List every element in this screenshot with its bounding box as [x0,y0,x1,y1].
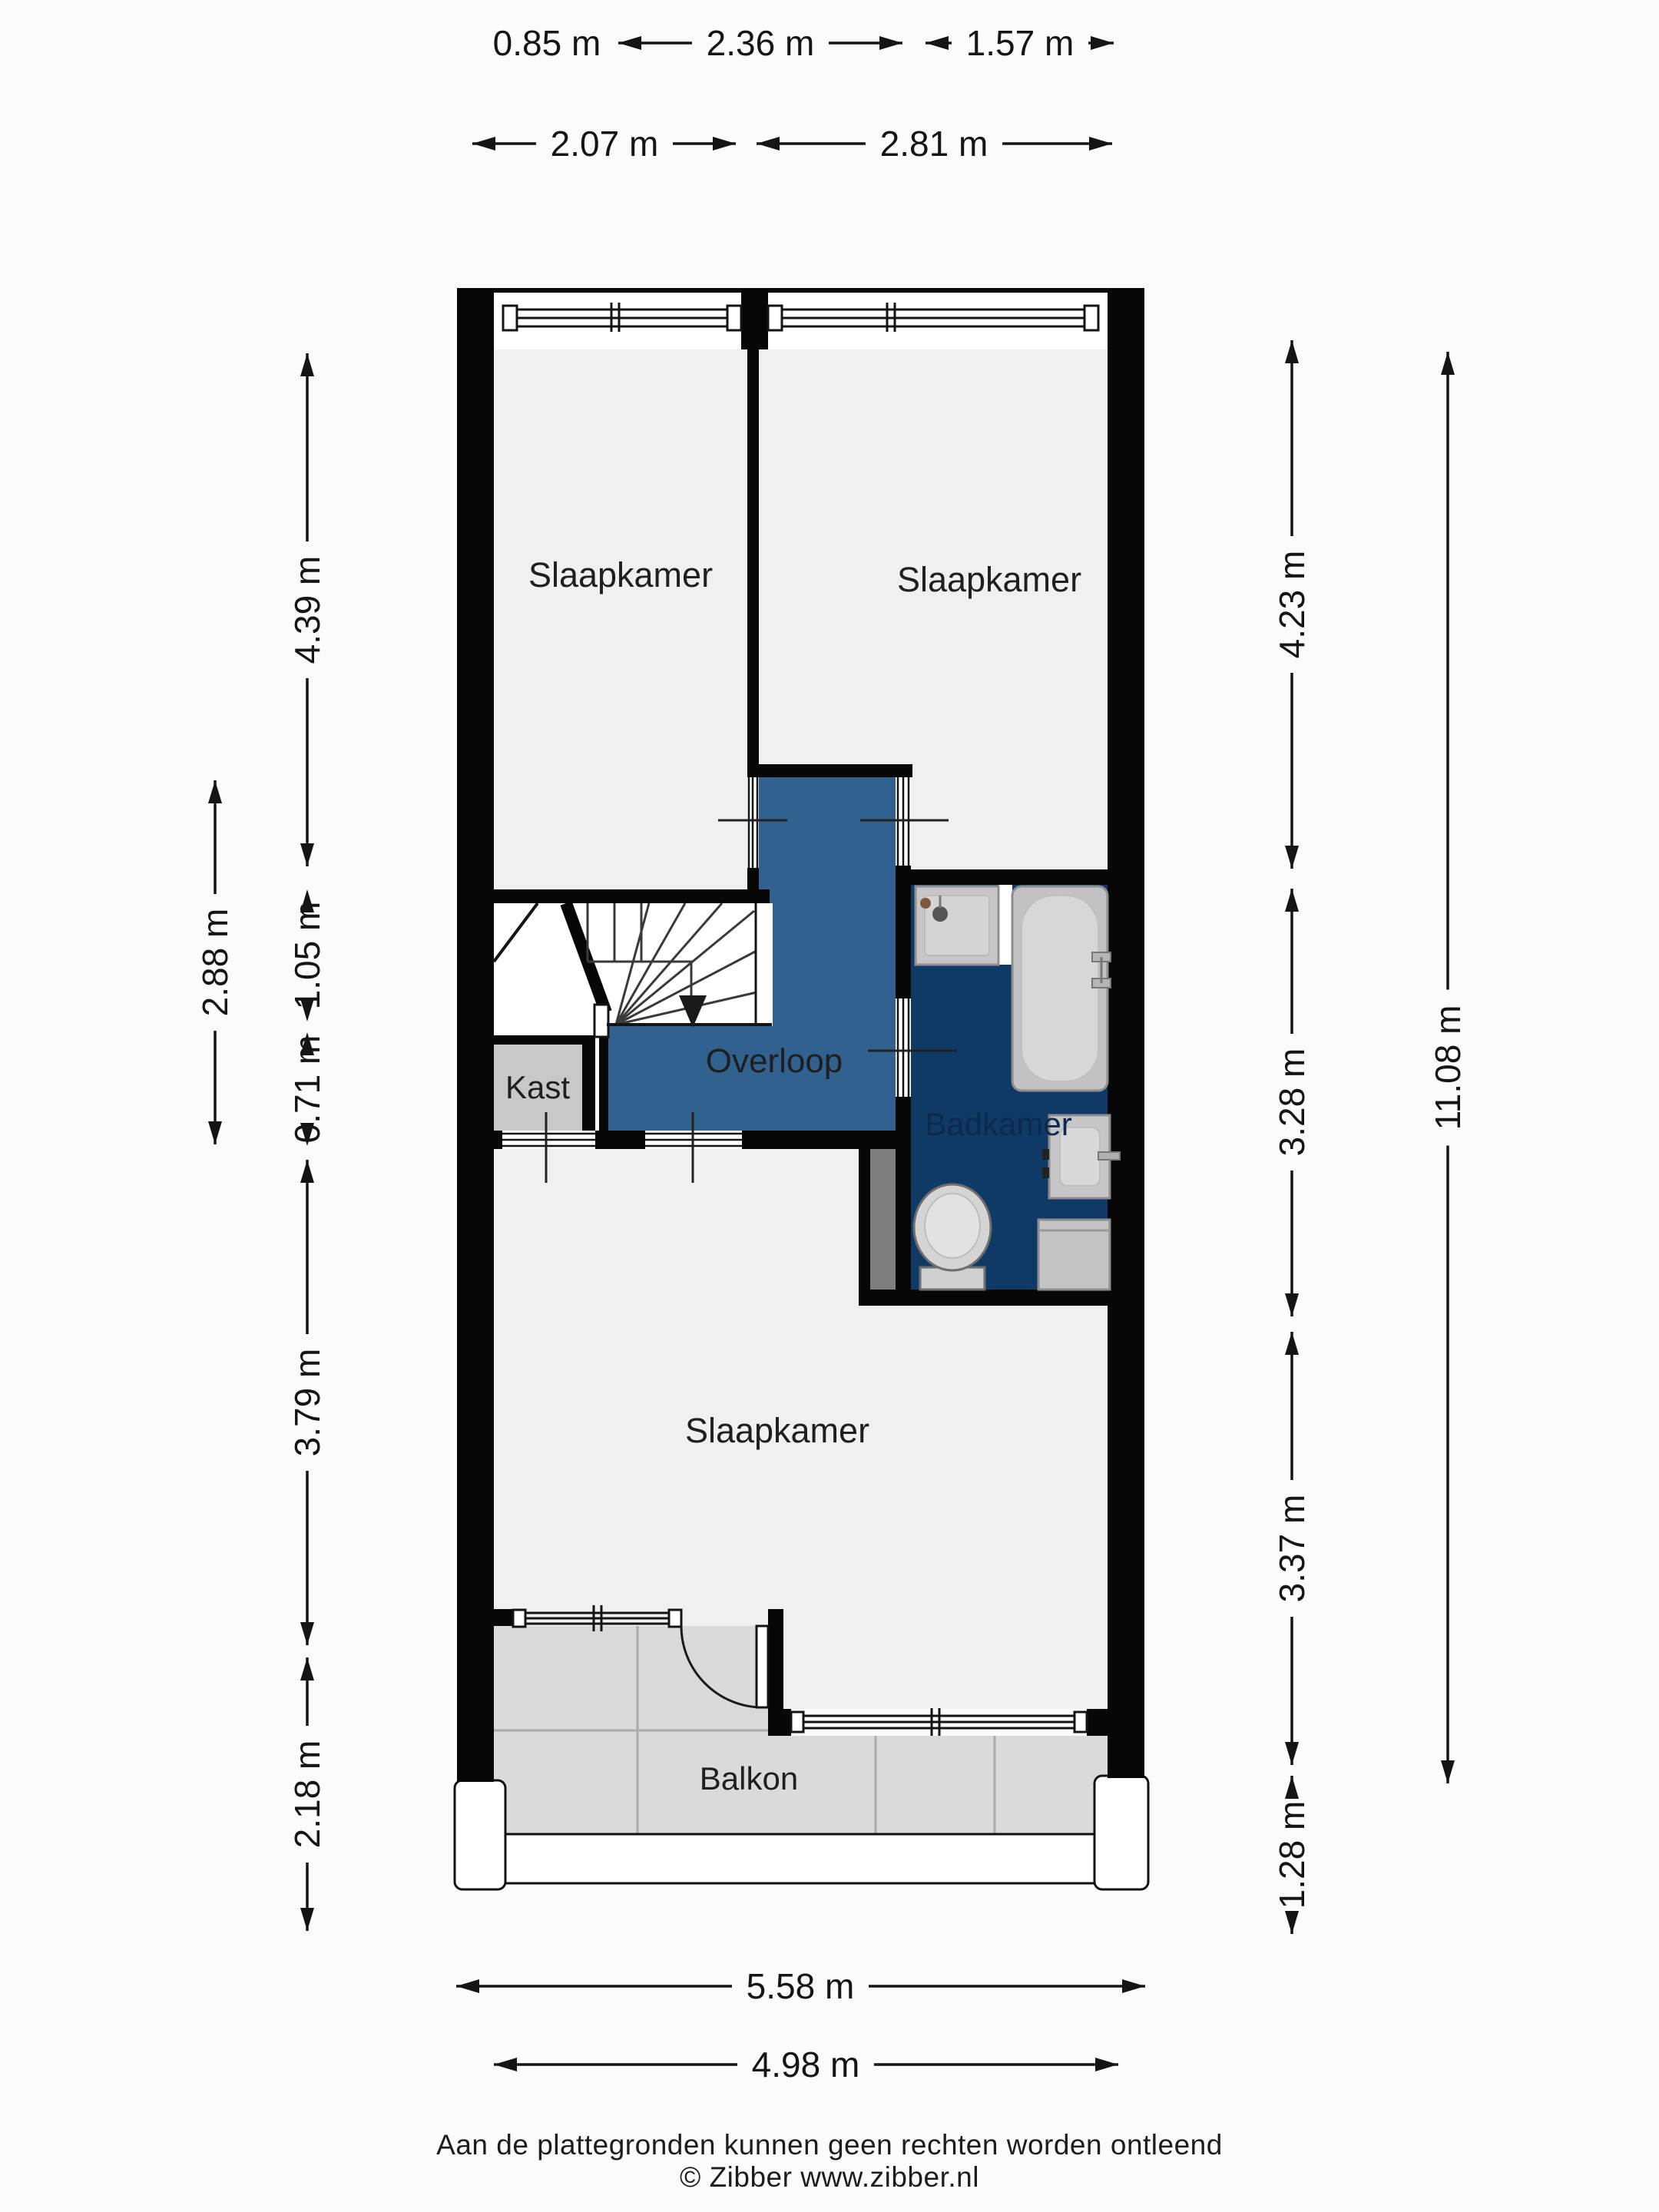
shower-head-icon [932,906,948,922]
dimension-3.37m: 3.37 m [1272,1332,1312,1765]
understair-area [494,1026,599,1037]
wall-below-bedroom-tr [911,869,1108,885]
sink-faucet-icon [1098,1152,1120,1160]
svg-text:1.05 m: 1.05 m [287,902,327,1010]
dimension-2.36m: 2.36 m [618,23,902,63]
wall-bedroom-divider-lower [747,868,759,889]
shower [916,886,998,965]
dimension-4.39m: 4.39 m [287,353,327,866]
door-leaf [757,1626,768,1707]
wall-landing-bottom-a [494,1131,502,1149]
dimension-2.88m: 2.88 m [195,780,235,1144]
fixture-gap [998,885,1012,965]
label-closet: Kast [505,1069,570,1105]
wall-top-edge [494,288,1108,293]
wall-exterior-left [457,288,494,1782]
dimension-11.08m: 11.08 m [1428,352,1468,1783]
dimension-1.57m: 1.57 m [926,23,1114,63]
dimension-0.71m: 0.71 m [287,1032,327,1146]
wall-landing-bathroom-upper [896,866,911,998]
balcony-railing [505,1834,1094,1883]
stair-door-jamb [594,1005,608,1037]
room-bedroom-top-left [494,349,747,889]
wall-below-bedroom-tl [494,889,770,903]
balcony-side-wall-left [455,1780,505,1889]
wall-bottom-window-left-stub [768,1709,791,1736]
window-band-top [494,293,1108,349]
svg-text:3.37 m: 3.37 m [1272,1495,1312,1603]
wall-band-divider [741,288,768,349]
wall-landing-bathroom-lower [896,1097,911,1306]
label-bedroom-top-left: Slaapkamer [528,555,713,594]
label-bedroom-bottom: Slaapkamer [685,1411,869,1450]
dimension-1.28m: 1.28 m [1272,1776,1312,1934]
footer-disclaimer: Aan de plattegronden kunnen geen rechten… [0,2129,1659,2161]
dimension-0.85m: 0.85 m [493,23,601,63]
label-landing: Overloop [706,1042,843,1080]
wall-closet-top [494,1035,595,1045]
svg-text:0.85 m: 0.85 m [493,23,601,63]
bathtub [1012,886,1111,1091]
balcony-side-wall-right [1094,1776,1148,1889]
dimension-2.18m: 2.18 m [287,1657,327,1931]
shower-knob-icon [920,898,931,909]
svg-text:2.81 m: 2.81 m [880,124,988,164]
room-bedroom-top-right [759,349,1108,764]
svg-text:1.28 m: 1.28 m [1272,1801,1312,1909]
svg-text:2.88 m: 2.88 m [195,909,235,1017]
dimension-3.79m: 3.79 m [287,1160,327,1645]
svg-text:2.07 m: 2.07 m [551,124,659,164]
washer [1038,1220,1110,1290]
svg-text:11.08 m: 11.08 m [1428,1005,1468,1131]
wall-closet-right [582,1045,595,1131]
wall-balcony-door-left-stub [494,1609,513,1626]
wall-landing-bottom-b [595,1131,645,1149]
dimension-4.98m: 4.98 m [494,2045,1118,2085]
wall-landing-notch-top [759,764,912,777]
dimension-2.81m: 2.81 m [757,124,1112,164]
wall-duct-left [859,1144,870,1306]
svg-text:5.58 m: 5.58 m [747,1966,855,2006]
floorplan-drawing: Slaapkamer Slaapkamer Slaapkamer Overloo… [0,0,1659,2212]
svg-text:4.39 m: 4.39 m [287,556,327,664]
dimension-1.05m: 1.05 m [287,889,327,1022]
svg-text:2.18 m: 2.18 m [287,1740,327,1849]
floorplan-page: Slaapkamer Slaapkamer Slaapkamer Overloo… [0,0,1659,2212]
svg-text:4.98 m: 4.98 m [752,2045,860,2085]
label-bathroom: Badkamer [925,1106,1071,1142]
window-bottom-right [791,1708,1087,1736]
svg-text:3.28 m: 3.28 m [1272,1048,1312,1157]
stair-railing-strip [757,903,773,1026]
svg-text:3.79 m: 3.79 m [287,1349,327,1457]
dimension-2.07m: 2.07 m [472,124,736,164]
room-bedroom-top-right-lower [911,764,1108,869]
wall-bathroom-bottom [859,1290,1144,1306]
wall-stair-post [599,1026,608,1131]
svg-text:2.36 m: 2.36 m [707,23,815,63]
label-balcony: Balkon [700,1760,798,1796]
wall-exterior-right [1108,288,1144,1778]
wall-landing-bottom-c [742,1131,896,1149]
wall-bottom-window-right-stub [1087,1709,1108,1736]
dimension-5.58m: 5.58 m [456,1966,1145,2006]
toilet [914,1184,991,1290]
label-bedroom-top-right: Slaapkamer [897,560,1081,599]
svg-text:0.71 m: 0.71 m [287,1035,327,1144]
footer-credit: © Zibber www.zibber.nl [0,2161,1659,2194]
dimension-3.28m: 3.28 m [1272,889,1312,1316]
svg-text:1.57 m: 1.57 m [966,23,1075,63]
duct-shaft [870,1149,896,1290]
dimension-4.23m: 4.23 m [1272,340,1312,869]
svg-text:4.23 m: 4.23 m [1272,551,1312,659]
wall-bedroom-divider [747,349,759,777]
